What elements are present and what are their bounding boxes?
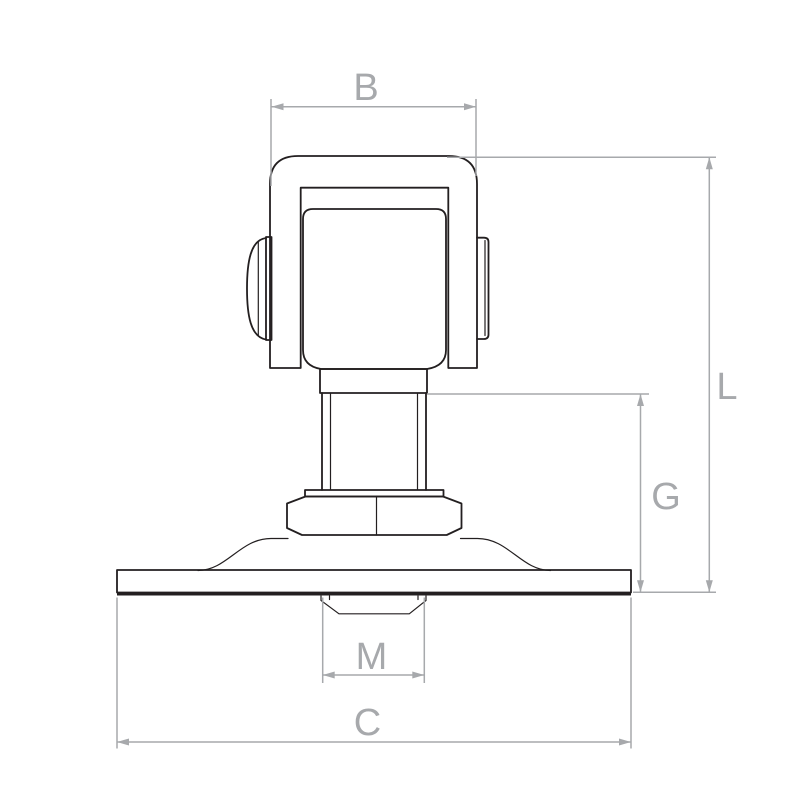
dim-b-arrow-left: [272, 103, 284, 110]
dimension-label-b: B: [353, 67, 378, 109]
pivot-block: [303, 209, 446, 369]
dimension-l: L: [447, 157, 738, 592]
dim-g-arrow-bottom: [637, 580, 644, 592]
dim-l-arrow-top: [706, 157, 713, 169]
dimension-label-g: G: [651, 476, 681, 518]
threaded-stem: [322, 393, 426, 490]
thread-stub: [321, 596, 426, 614]
washer: [305, 490, 444, 497]
plate-outline: [117, 570, 631, 593]
collar: [320, 369, 427, 393]
dim-l-arrow-bottom: [706, 580, 713, 592]
pin-left: [247, 237, 272, 340]
stem-outer-lines: [322, 393, 426, 490]
dimension-label-c: C: [354, 702, 381, 744]
dim-m-arrow-right: [412, 672, 424, 679]
pin-left-seat: [266, 237, 272, 340]
dome-washer: [198, 539, 551, 571]
pin-right: [477, 238, 489, 339]
technical-drawing-canvas: B L G: [0, 0, 800, 800]
dimension-b: B: [271, 67, 476, 186]
dimension-label-m: M: [356, 636, 388, 678]
dimension-label-l: L: [716, 366, 737, 408]
drawing-svg: B L G: [0, 0, 800, 800]
dim-c-arrow-left: [117, 739, 129, 746]
dim-m-arrow-left: [323, 672, 335, 679]
dim-l-extension-lines: [447, 157, 716, 592]
dim-c-arrow-right: [619, 739, 631, 746]
dimension-g: G: [427, 394, 681, 592]
pin-left-head: [247, 238, 266, 340]
flange-plate: [117, 570, 631, 594]
dim-g-arrow-top: [637, 394, 644, 406]
dimension-m: M: [323, 598, 425, 684]
hex-nut: [287, 497, 462, 536]
pin-right-body: [477, 238, 489, 339]
nut-outline: [287, 497, 462, 536]
dimension-annotations: B L G: [117, 67, 738, 749]
dim-b-extension-lines: [271, 99, 476, 186]
stem-thread-lines: [331, 394, 418, 490]
hinge-part: [117, 156, 631, 614]
dim-b-arrow-right: [464, 103, 476, 110]
